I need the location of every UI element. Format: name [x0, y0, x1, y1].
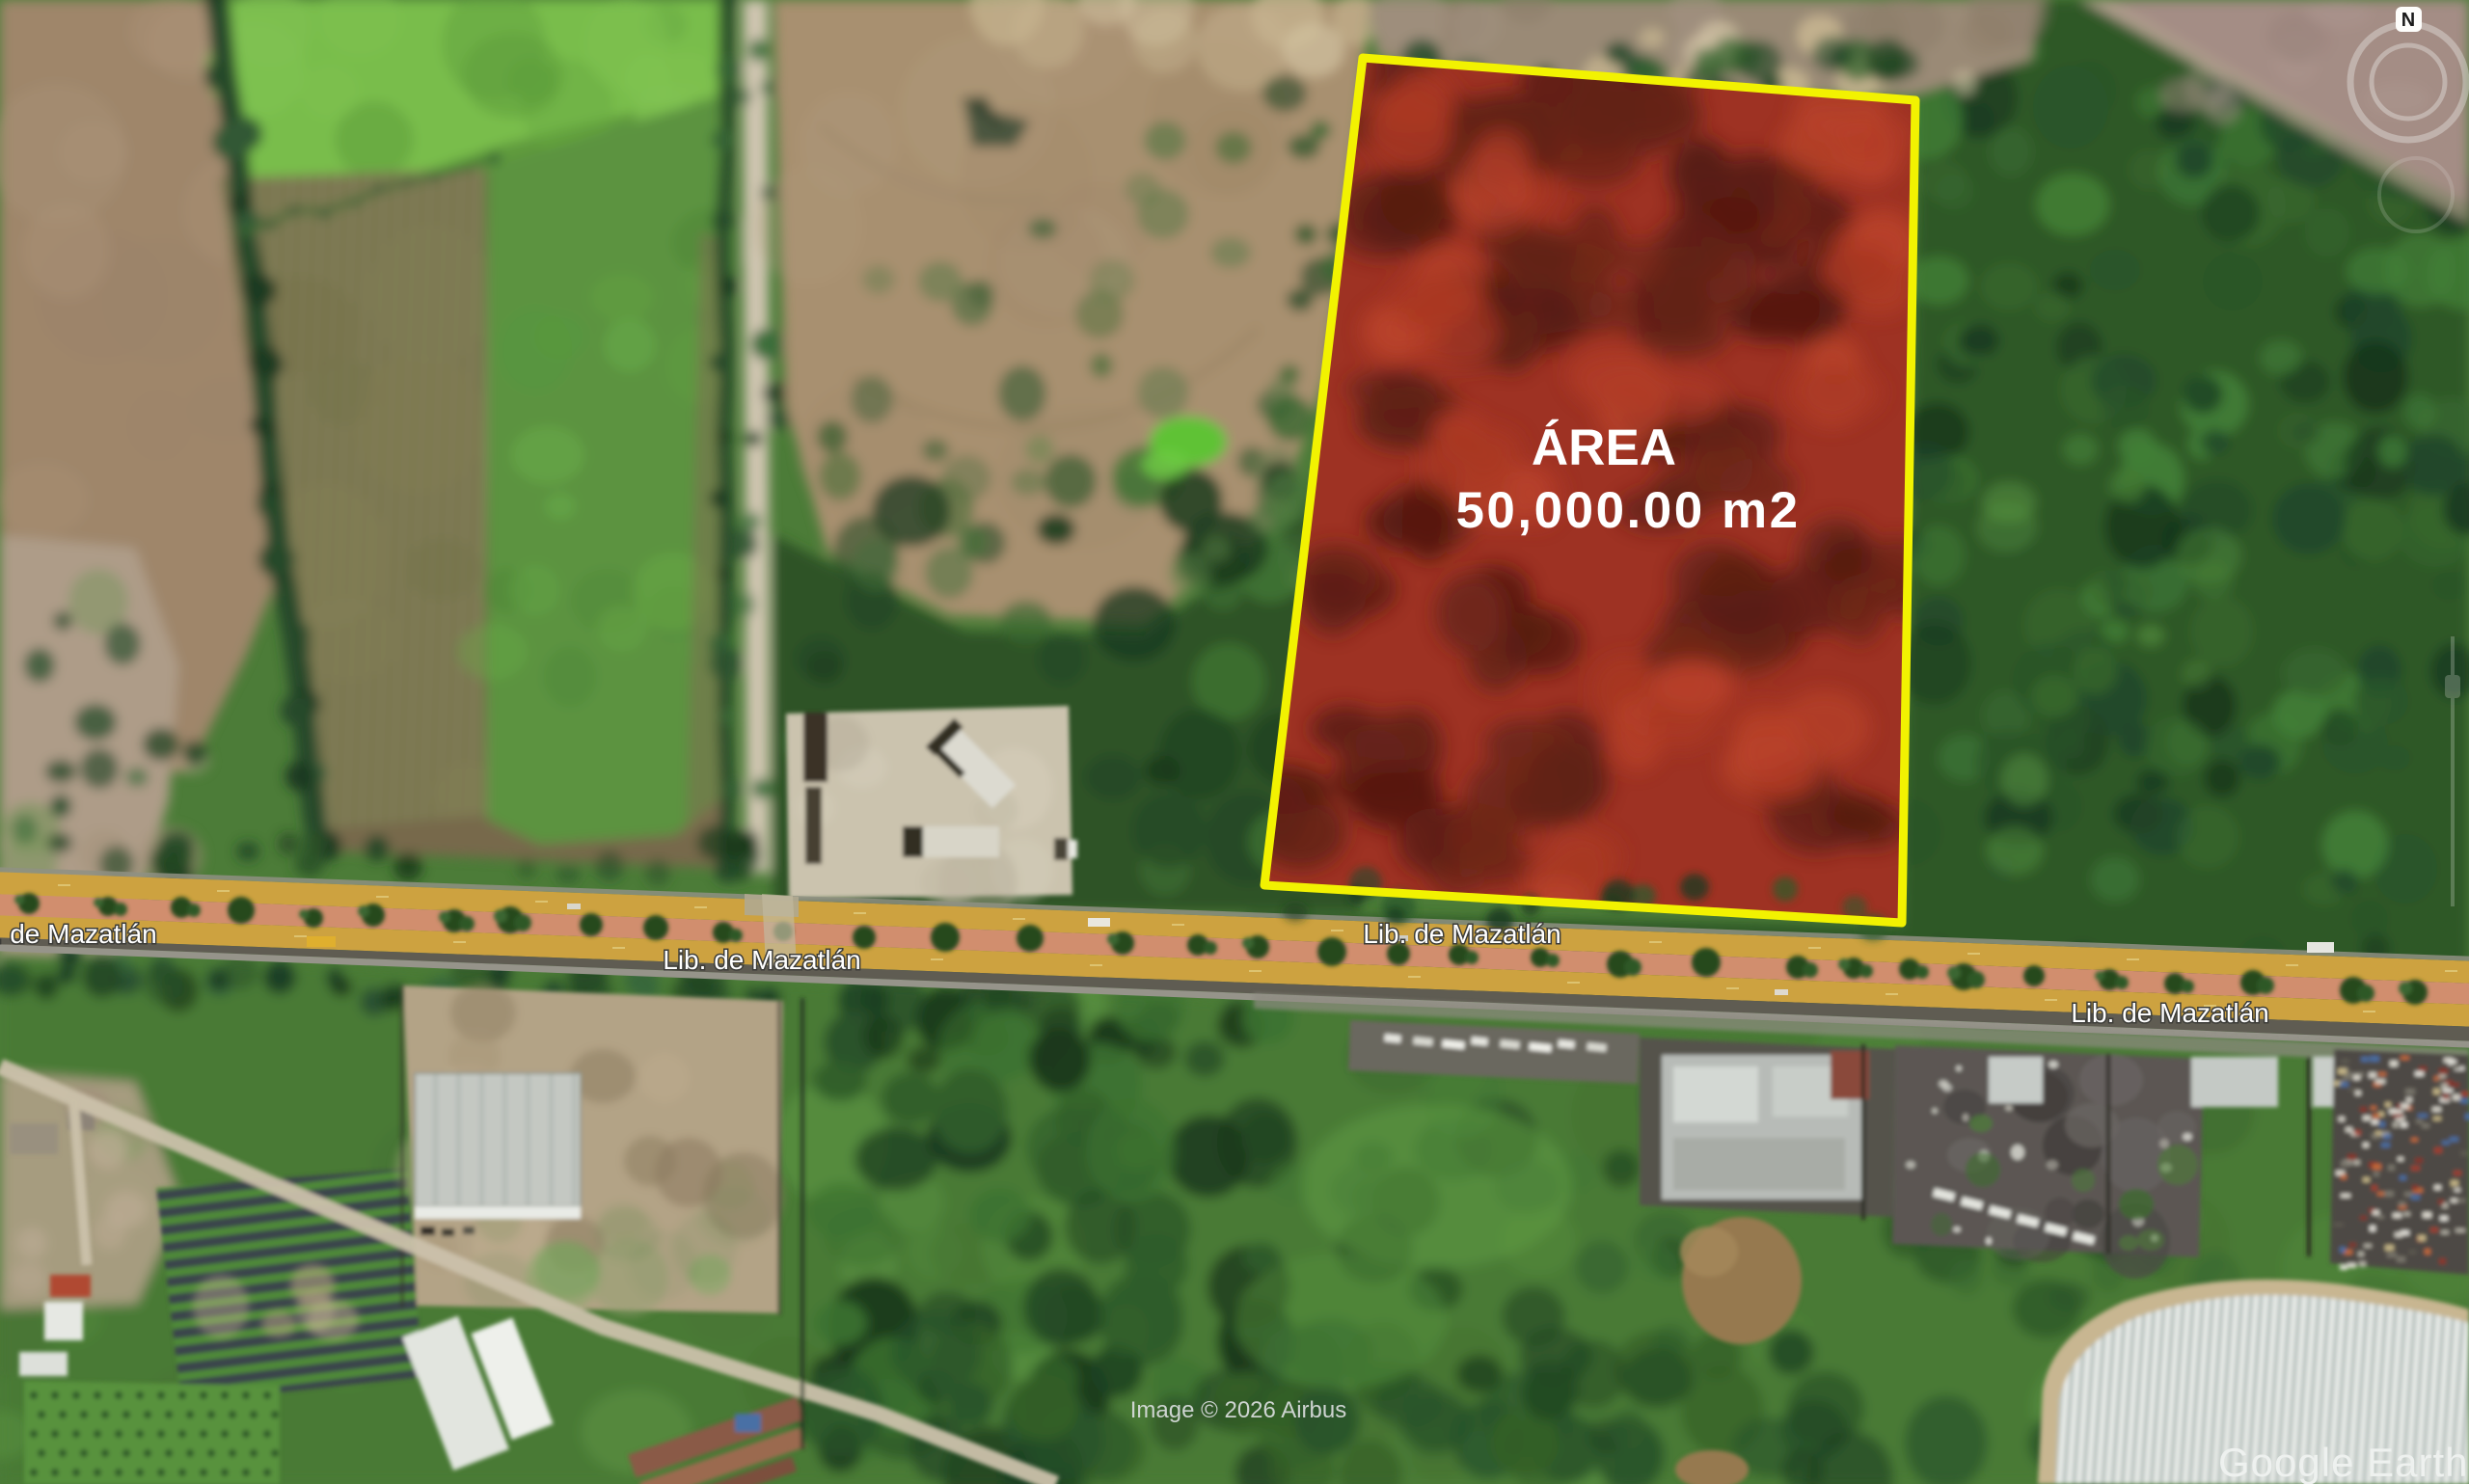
svg-text:Lib. de Mazatlán: Lib. de Mazatlán [0, 919, 157, 949]
svg-text:Lib. de Mazatlán: Lib. de Mazatlán [2071, 998, 2268, 1028]
svg-text:Google Earth: Google Earth [2218, 1440, 2469, 1484]
svg-text:Image © 2026 Airbus: Image © 2026 Airbus [1130, 1397, 1346, 1423]
svg-text:N: N [2401, 10, 2415, 31]
svg-text:ÁREA: ÁREA [1532, 418, 1676, 476]
svg-text:50,000.00 m2: 50,000.00 m2 [1455, 482, 1800, 539]
svg-text:Lib. de Mazatlán: Lib. de Mazatlán [663, 945, 860, 975]
svg-text:Lib. de Mazatlán: Lib. de Mazatlán [1363, 919, 1560, 949]
